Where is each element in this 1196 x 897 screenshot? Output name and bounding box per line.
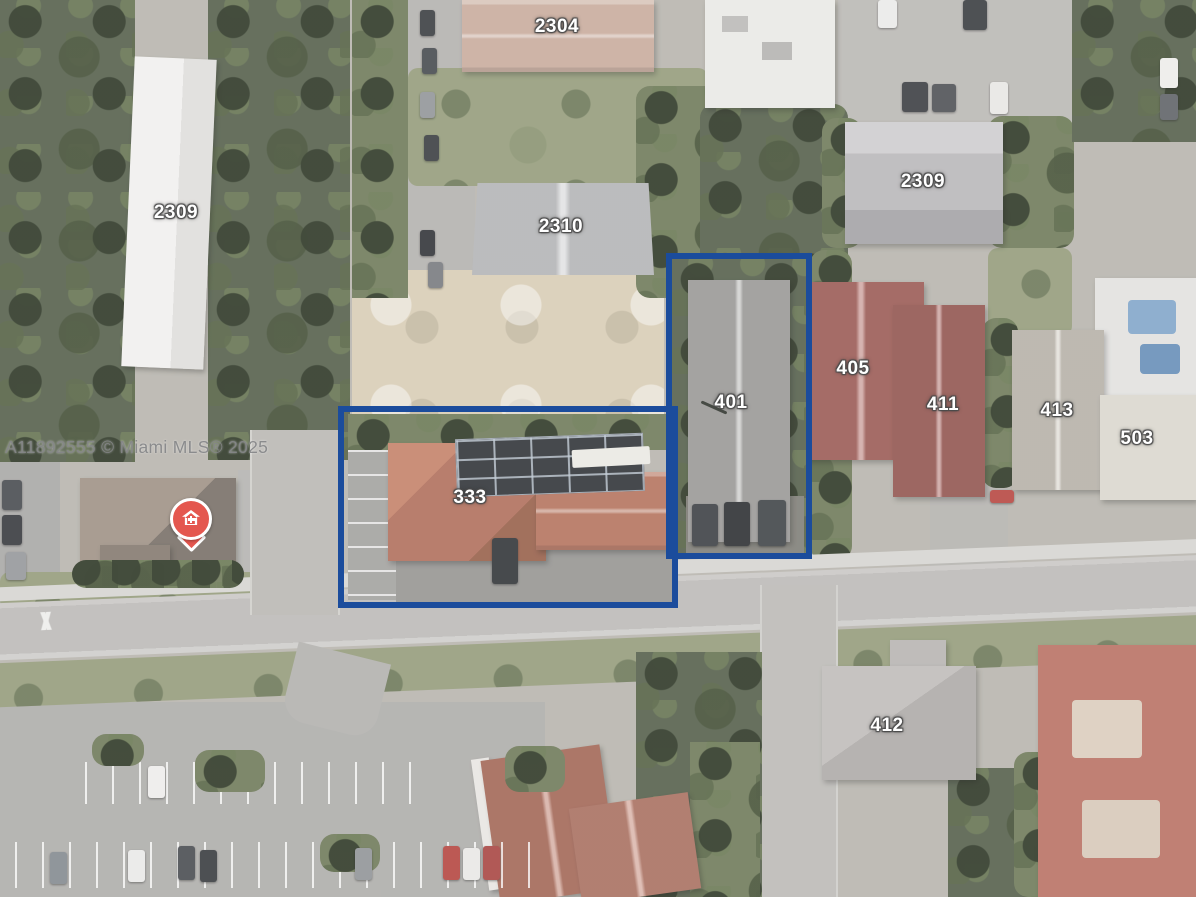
address-label-2310: 2310 (539, 216, 583, 238)
address-label-405: 405 (836, 358, 869, 380)
car-tr-4 (932, 84, 956, 112)
address-label-2309-left: 2309 (154, 202, 198, 224)
car-bl-7 (443, 846, 460, 880)
car-drive-5 (420, 230, 435, 256)
car-red-405 (990, 490, 1014, 503)
industrial-blue-roof-2 (1140, 344, 1180, 374)
pin-plus-icon-bar (188, 518, 195, 521)
car-bl-9 (483, 846, 500, 880)
car-tr-2 (963, 0, 987, 30)
tree-over-parking-3 (505, 746, 565, 792)
car-bl-5 (200, 850, 217, 882)
address-label-401: 401 (714, 392, 747, 414)
address-label-413: 413 (1040, 400, 1073, 422)
address-label-333: 333 (453, 487, 486, 509)
car-bl-4 (178, 846, 195, 880)
car-left-1 (2, 480, 22, 510)
car-bl-8 (463, 848, 480, 880)
car-tr-7 (1160, 94, 1178, 120)
tree-over-parking-1 (195, 750, 265, 792)
car-tr-6 (1160, 58, 1178, 88)
building-industrial-right (1095, 278, 1196, 408)
car-left-3 (6, 552, 26, 580)
address-label-412: 412 (870, 715, 903, 737)
trees-left-west (0, 0, 135, 462)
courtyard-1 (1072, 700, 1142, 758)
car-tr-1 (878, 0, 897, 28)
highlight-box-333 (338, 406, 678, 608)
trees-left-east (208, 0, 350, 460)
car-tr-5 (990, 82, 1008, 114)
car-drive-2 (422, 48, 437, 74)
hedge-row-clinic (72, 560, 244, 588)
car-bl-2 (50, 852, 67, 884)
aerial-photo-canvas: 2304 2309 2310 2309 401 405 411 413 503 … (0, 0, 1196, 897)
address-label-503: 503 (1120, 428, 1153, 450)
building-bottom-right-complex (1038, 645, 1196, 897)
car-bl-6 (355, 848, 372, 880)
rooftop-unit-1 (722, 16, 748, 32)
courtyard-2 (1082, 800, 1160, 858)
address-label-411: 411 (927, 394, 959, 416)
address-label-2304: 2304 (535, 16, 579, 38)
address-label-2309-right: 2309 (901, 171, 945, 193)
car-drive-6 (428, 262, 443, 288)
tree-over-parking-4 (92, 734, 144, 766)
trees-strip-mid (352, 0, 408, 298)
car-drive-1 (420, 10, 435, 36)
car-bl-3 (128, 850, 145, 882)
car-drive-3 (420, 92, 435, 118)
car-bl-1 (148, 766, 165, 798)
industrial-blue-roof-1 (1128, 300, 1176, 334)
road-arrow-marking (18, 611, 75, 632)
car-left-2 (2, 515, 22, 545)
trees-bottom-center-2 (690, 742, 760, 897)
car-tr-3 (902, 82, 928, 112)
mls-watermark: A11892555 © Miami MLS® 2025 (5, 437, 268, 458)
rooftop-unit-2 (762, 42, 792, 60)
building-bottom-center-red-2 (569, 792, 701, 897)
medical-home-pin-icon (170, 498, 208, 546)
car-drive-4 (424, 135, 439, 161)
